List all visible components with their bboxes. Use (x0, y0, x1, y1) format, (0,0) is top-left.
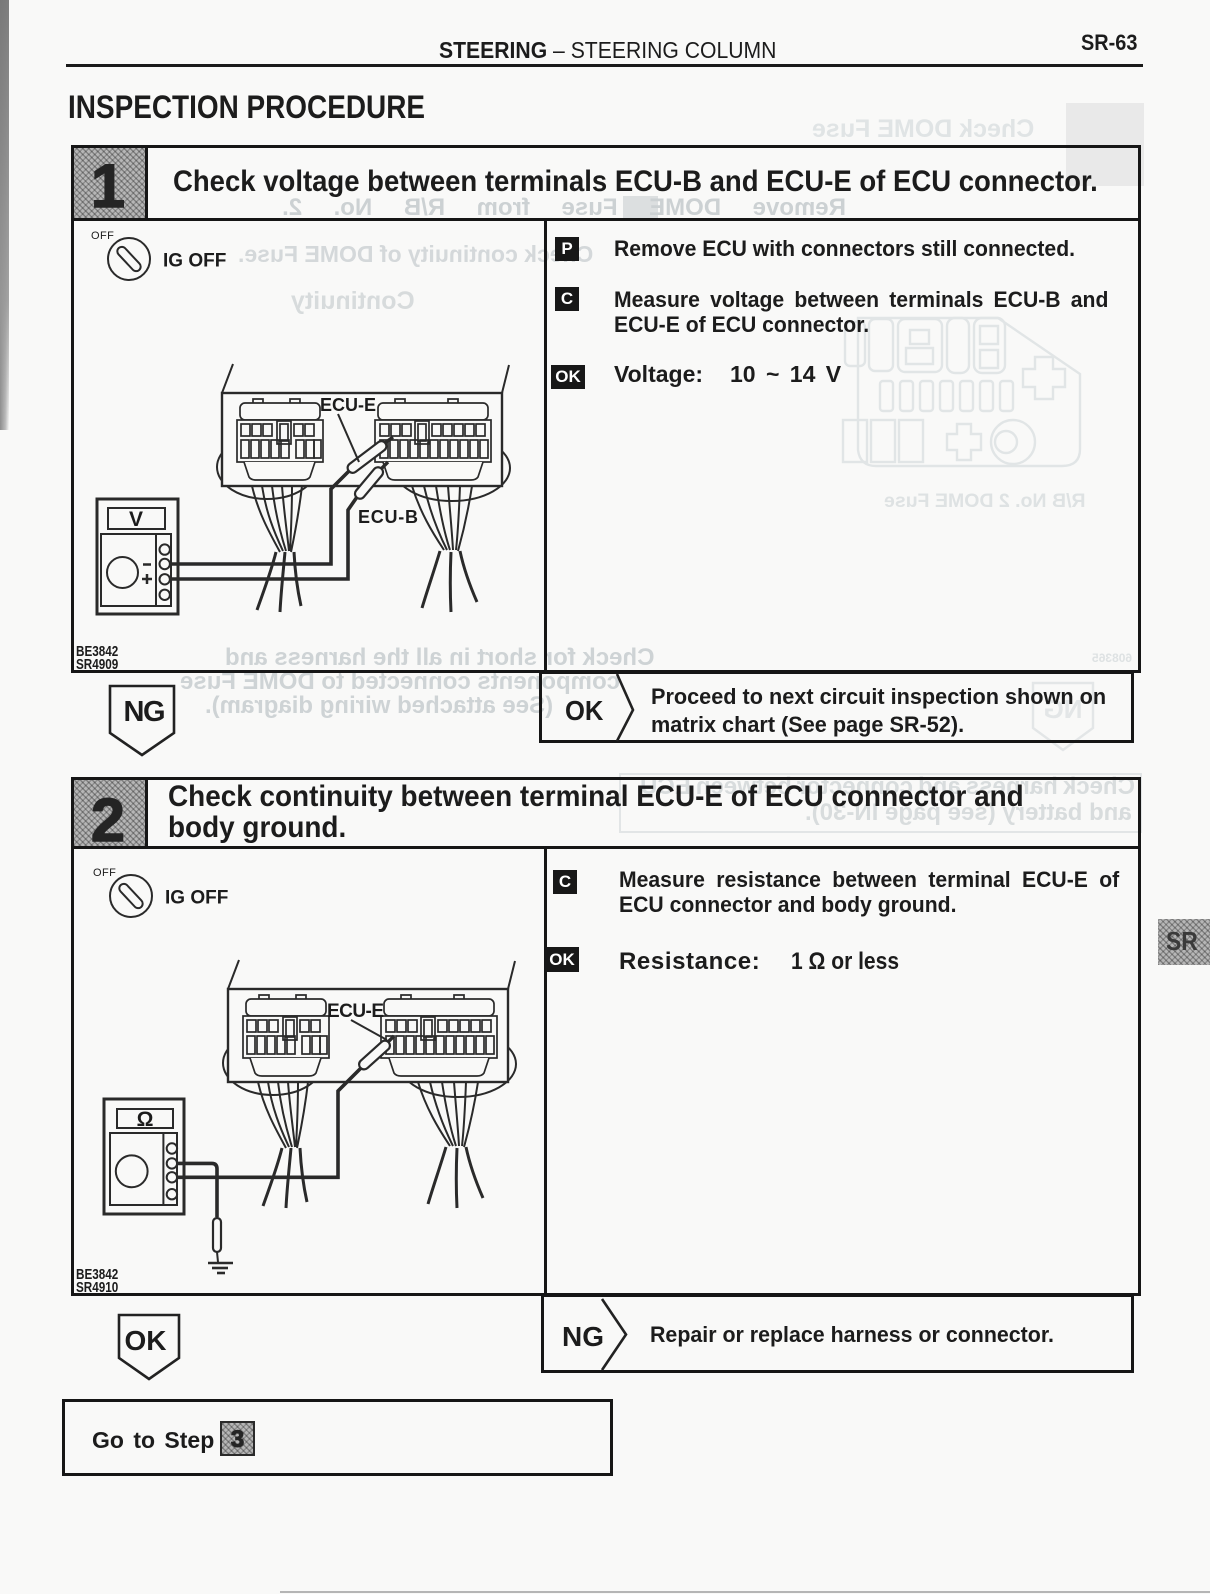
svg-text:V: V (129, 508, 143, 531)
svg-text:Ω: Ω (137, 1108, 154, 1131)
svg-text:ECU-B: ECU-B (358, 507, 418, 527)
svg-text:OK: OK (125, 1325, 167, 1356)
svg-text:ECU-E: ECU-E (327, 1001, 384, 1022)
svg-text:NG: NG (124, 696, 166, 728)
svg-text:ECU-E: ECU-E (320, 395, 376, 415)
